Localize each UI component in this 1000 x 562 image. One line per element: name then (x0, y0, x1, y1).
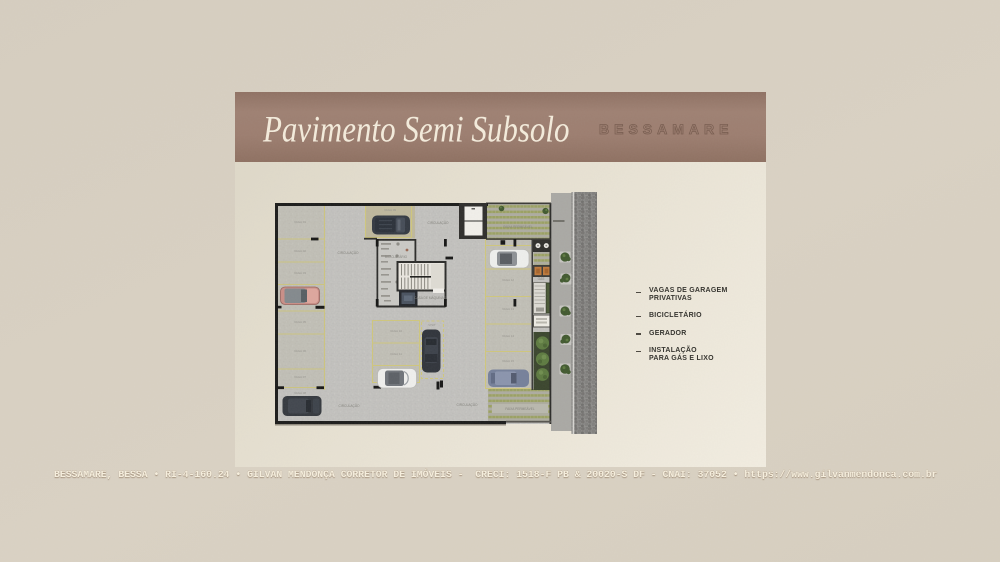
svg-text:CIRCULAÇÃO: CIRCULAÇÃO (428, 220, 449, 225)
svg-text:VAGA 01: VAGA 01 (294, 220, 306, 224)
svg-text:VAGA 14: VAGA 14 (502, 334, 514, 338)
svg-text:CIRCULAÇÃO: CIRCULAÇÃO (339, 403, 360, 408)
svg-text:VAGA 07: VAGA 07 (294, 375, 306, 379)
svg-text:GÁS: GÁS (538, 277, 545, 281)
svg-text:FAIXA PERMEÁVEL: FAIXA PERMEÁVEL (505, 407, 534, 411)
svg-text:VAGA 13: VAGA 13 (502, 307, 514, 311)
svg-text:CASA DE MÁQUINAS: CASA DE MÁQUINAS (414, 296, 446, 300)
svg-text:BICICLETÁRIO: BICICLETÁRIO (385, 255, 408, 259)
svg-text:CIRCULAÇÃO: CIRCULAÇÃO (457, 402, 478, 407)
svg-text:VISIT: VISIT (428, 323, 436, 327)
svg-text:VAGA 02: VAGA 02 (294, 249, 306, 253)
svg-text:FAIXA PERMEÁVEL: FAIXA PERMEÁVEL (503, 225, 532, 229)
svg-text:VAGA 12: VAGA 12 (502, 278, 514, 282)
svg-text:VAGA 15: VAGA 15 (502, 359, 514, 363)
svg-text:VAGA 06: VAGA 06 (294, 349, 306, 353)
svg-text:CIRCULAÇÃO: CIRCULAÇÃO (338, 250, 359, 255)
svg-text:VAGA 09: VAGA 09 (384, 208, 396, 212)
svg-text:VAGA 11: VAGA 11 (390, 352, 402, 356)
svg-text:VAGA 03: VAGA 03 (294, 271, 306, 275)
svg-text:VAGA 08: VAGA 08 (294, 391, 306, 395)
svg-text:VAGA 10: VAGA 10 (390, 329, 402, 333)
svg-text:VAGA 05: VAGA 05 (294, 320, 306, 324)
